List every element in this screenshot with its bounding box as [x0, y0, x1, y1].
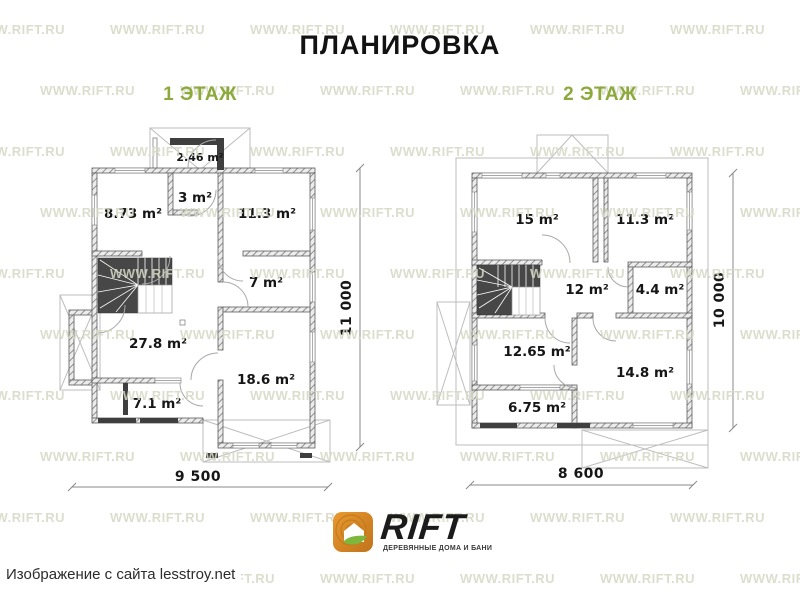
floor2-heading: 2 ЭТАЖ — [420, 84, 780, 106]
room-area-label: 27.8 m² — [129, 336, 187, 352]
room-area-label: 3 m² — [178, 190, 212, 206]
watermark-text: WWW.RIFT.RU — [670, 510, 765, 525]
room-area-label: 8.73 m² — [104, 206, 162, 222]
source-caption: Изображение с сайта lesstroy.net — [6, 566, 241, 583]
room-area-label: 2.46 m² — [176, 151, 223, 164]
room-area-label: 7 m² — [249, 275, 283, 291]
house-leaf-icon — [333, 512, 373, 552]
floor2-dimensions — [466, 169, 737, 489]
watermark-text: WWW.RIFT.RU — [250, 510, 345, 525]
room-area-label: 15 m² — [515, 212, 559, 228]
floor2-stairs — [477, 265, 540, 315]
room-area-label: 6.75 m² — [508, 400, 566, 416]
dim-width-label: 8 600 — [558, 466, 604, 482]
floor1-stairs — [98, 258, 185, 325]
dim-width-label: 9 500 — [175, 469, 221, 485]
watermark-text: WWW.RIFT.RU — [530, 510, 625, 525]
logo-name: RIFT — [379, 506, 467, 548]
watermark-text: WWW.RIFT.RU — [600, 571, 695, 586]
room-area-label: 12 m² — [565, 282, 609, 298]
room-area-label: 7.1 m² — [133, 396, 182, 412]
room-area-label: 11.3 m² — [238, 206, 296, 222]
floor1-heading: 1 ЭТАЖ — [20, 84, 380, 106]
room-area-label: 18.6 m² — [237, 372, 295, 388]
floor1-plan: 2.46 m² 3 m² 8.73 m² 11.3 m² 7 m² 27.8 m… — [20, 110, 380, 510]
logo-tagline: ДЕРЕВЯННЫЕ ДОМА И БАНИ — [383, 545, 492, 552]
room-area-label: 11.3 m² — [616, 212, 674, 228]
room-area-label: 14.8 m² — [616, 365, 674, 381]
watermark-text: WWW.RIFT.RU — [460, 571, 555, 586]
dim-height-label: 10 000 — [712, 272, 728, 329]
dim-height-label: 11 000 — [339, 280, 355, 337]
room-area-label: 12.65 m² — [503, 344, 570, 360]
room-area-label: 4.4 m² — [636, 282, 685, 298]
rift-logo-icon — [333, 512, 373, 552]
page-title: ПЛАНИРОВКА — [0, 30, 800, 61]
watermark-text: WWW.RIFT.RU — [740, 571, 800, 586]
watermark-text: WWW.RIFT.RU — [320, 571, 415, 586]
floor2-plan: 15 m² 11.3 m² 12 m² 4.4 m² 12.65 m² 14.8… — [420, 110, 780, 510]
watermark-text: WWW.RIFT.RU — [110, 510, 205, 525]
watermark-text: WWW.RIFT.RU — [0, 510, 65, 525]
